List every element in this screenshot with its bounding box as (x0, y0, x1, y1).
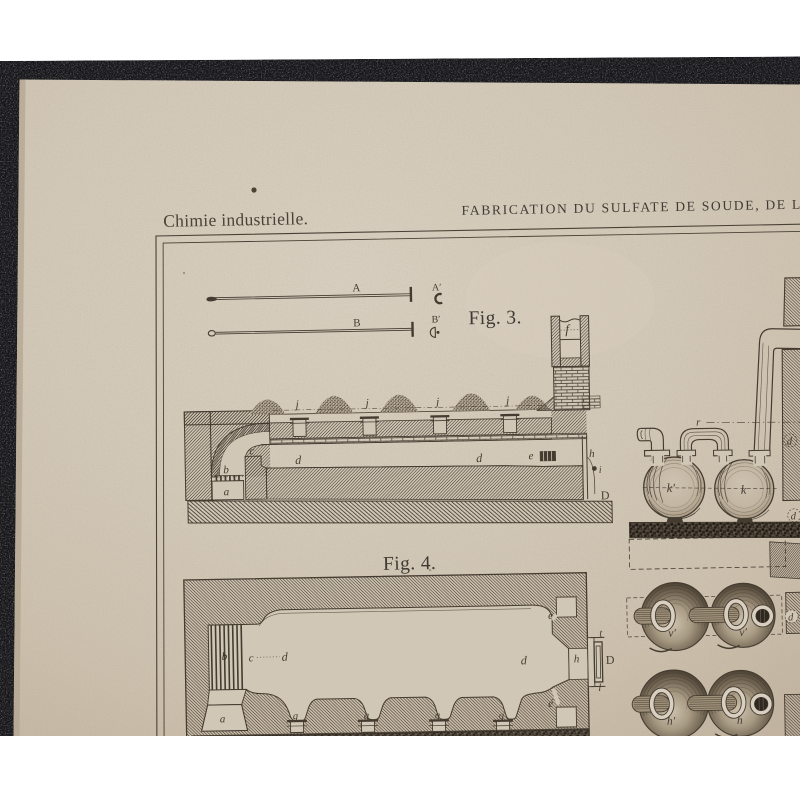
svg-text:e: e (528, 450, 533, 462)
svg-text:a: a (220, 713, 226, 725)
svg-text:h: h (574, 653, 580, 665)
svg-text:b: b (222, 651, 228, 663)
svg-text:Fig. 4.: Fig. 4. (383, 553, 437, 575)
svg-text:k: k (741, 483, 747, 497)
svg-text:A: A (352, 282, 360, 294)
svg-text:d: d (791, 511, 797, 522)
svg-text:Fig. 3.: Fig. 3. (468, 307, 522, 329)
svg-text:e: e (548, 610, 553, 622)
svg-text:l: l (598, 683, 601, 694)
svg-text:g: g (293, 711, 298, 722)
svg-text:B′: B′ (431, 314, 440, 325)
svg-text:B: B (353, 317, 361, 329)
svg-text:h: h (737, 715, 743, 727)
svg-text:a: a (224, 486, 230, 498)
svg-text:h: h (589, 448, 595, 460)
svg-text:D: D (601, 488, 610, 502)
svg-text:A′: A′ (432, 282, 442, 293)
svg-text:v′: v′ (668, 628, 676, 640)
svg-text:c: c (249, 445, 254, 457)
svg-text:i: i (599, 465, 602, 476)
svg-text:h′: h′ (667, 716, 676, 728)
svg-text:c: c (249, 652, 254, 664)
svg-text:d: d (787, 436, 793, 447)
svg-text:g: g (364, 711, 369, 722)
svg-text:g: g (435, 710, 440, 721)
svg-text:Chimie industrielle.: Chimie industrielle. (163, 208, 308, 231)
svg-text:b: b (223, 464, 229, 476)
svg-text:D: D (606, 653, 615, 667)
svg-text:g: g (499, 711, 504, 722)
svg-text:d: d (788, 612, 794, 623)
svg-text:v′: v′ (739, 627, 747, 639)
